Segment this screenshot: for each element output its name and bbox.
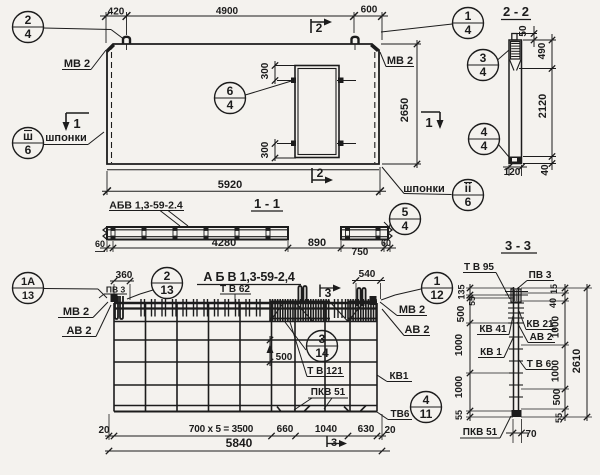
svg-text:890: 890 [308, 237, 326, 249]
svg-text:1000: 1000 [454, 375, 465, 398]
svg-text:3: 3 [319, 332, 326, 346]
svg-text:12: 12 [430, 288, 444, 302]
svg-text:3: 3 [325, 286, 332, 300]
svg-text:1 - 1: 1 - 1 [254, 196, 280, 211]
svg-text:КВ1: КВ1 [390, 371, 409, 382]
svg-text:Т В 6: Т В 6 [527, 359, 552, 370]
svg-text:3: 3 [331, 437, 337, 449]
svg-text:АВ 2: АВ 2 [530, 332, 553, 343]
svg-text:ПКВ 51: ПКВ 51 [311, 387, 346, 398]
svg-text:490: 490 [537, 42, 548, 59]
svg-text:КВ 41: КВ 41 [479, 324, 507, 335]
svg-text:15: 15 [549, 284, 559, 294]
svg-text:Т В 62: Т В 62 [220, 284, 250, 295]
svg-text:500: 500 [276, 352, 293, 363]
svg-text:ii: ii [465, 181, 472, 195]
svg-text:11: 11 [420, 407, 433, 421]
svg-text:40: 40 [540, 164, 551, 176]
svg-text:14: 14 [315, 346, 329, 360]
svg-text:3: 3 [480, 51, 487, 65]
svg-text:1040: 1040 [315, 424, 338, 435]
svg-text:4: 4 [423, 393, 430, 407]
svg-text:1000: 1000 [454, 333, 465, 356]
svg-text:300: 300 [260, 141, 271, 158]
svg-text:360: 360 [116, 270, 133, 281]
svg-text:13: 13 [160, 283, 174, 297]
svg-text:40: 40 [548, 298, 558, 308]
svg-text:5840: 5840 [226, 436, 253, 450]
svg-text:6: 6 [25, 143, 32, 157]
svg-text:ПКВ 51: ПКВ 51 [463, 427, 498, 438]
svg-text:1000: 1000 [551, 359, 562, 382]
svg-text:750: 750 [352, 247, 369, 258]
svg-text:шпонки: шпонки [45, 132, 86, 144]
svg-text:300: 300 [260, 62, 271, 79]
svg-text:3 - 3: 3 - 3 [505, 238, 531, 253]
svg-text:60: 60 [95, 239, 105, 249]
svg-text:540: 540 [359, 269, 376, 280]
svg-text:420: 420 [108, 7, 125, 18]
svg-text:2 - 2: 2 - 2 [503, 4, 529, 19]
svg-text:1А: 1А [21, 276, 35, 288]
svg-text:4: 4 [481, 125, 488, 139]
svg-text:4: 4 [227, 98, 234, 112]
svg-text:4: 4 [465, 23, 472, 37]
svg-text:АБВ 1,3-59-2.4: АБВ 1,3-59-2.4 [109, 200, 183, 212]
svg-text:ПВ 3: ПВ 3 [529, 270, 552, 281]
svg-text:20: 20 [384, 425, 396, 436]
svg-text:55: 55 [467, 296, 477, 306]
svg-text:1: 1 [73, 116, 80, 131]
svg-text:2: 2 [317, 166, 324, 180]
svg-text:70: 70 [525, 429, 537, 440]
svg-text:4: 4 [402, 219, 409, 233]
svg-text:Т В 95: Т В 95 [464, 262, 494, 273]
svg-text:1: 1 [434, 274, 441, 288]
svg-text:5920: 5920 [218, 179, 242, 191]
svg-text:4280: 4280 [212, 237, 236, 249]
svg-text:2: 2 [25, 13, 32, 27]
svg-text:АВ 2: АВ 2 [66, 325, 91, 337]
svg-text:630: 630 [358, 424, 375, 435]
svg-text:20: 20 [98, 425, 110, 436]
svg-text:55: 55 [454, 410, 464, 420]
svg-text:2: 2 [164, 269, 171, 283]
svg-text:6: 6 [465, 195, 472, 209]
svg-text:4: 4 [481, 139, 488, 153]
svg-text:600: 600 [361, 5, 378, 16]
svg-text:2: 2 [316, 21, 323, 35]
svg-text:ПВ 3: ПВ 3 [106, 285, 126, 295]
svg-text:2120: 2120 [537, 94, 549, 118]
svg-text:Т В 121: Т В 121 [307, 366, 343, 377]
svg-text:660: 660 [277, 424, 294, 435]
svg-text:2650: 2650 [399, 98, 411, 122]
svg-text:135: 135 [457, 284, 467, 299]
svg-text:13: 13 [22, 290, 34, 302]
svg-text:4900: 4900 [216, 6, 239, 17]
svg-text:700 х 5 = 3500: 700 х 5 = 3500 [189, 424, 254, 435]
svg-text:4: 4 [25, 27, 32, 41]
svg-text:КВ 21: КВ 21 [526, 319, 554, 330]
svg-text:6: 6 [227, 84, 234, 98]
svg-text:60: 60 [381, 238, 391, 248]
svg-text:МВ 2: МВ 2 [63, 306, 89, 318]
svg-text:500: 500 [456, 305, 467, 322]
svg-text:ш: ш [23, 129, 33, 143]
svg-text:120: 120 [504, 167, 521, 178]
svg-text:5: 5 [402, 205, 409, 219]
svg-text:1: 1 [465, 9, 472, 23]
svg-text:МВ 2: МВ 2 [64, 58, 90, 70]
svg-text:МВ 2: МВ 2 [387, 55, 413, 67]
svg-text:МВ 2: МВ 2 [399, 304, 425, 316]
svg-text:2610: 2610 [571, 349, 583, 373]
svg-text:55: 55 [554, 413, 564, 423]
svg-text:500: 500 [552, 388, 563, 405]
svg-text:ТВ6: ТВ6 [391, 409, 410, 420]
svg-text:4: 4 [480, 65, 487, 79]
svg-text:А Б В 1,3-59-2,4: А Б В 1,3-59-2,4 [203, 270, 294, 284]
svg-text:АВ 2: АВ 2 [404, 324, 429, 336]
svg-text:1: 1 [425, 115, 432, 130]
svg-text:КВ 1: КВ 1 [480, 347, 502, 358]
svg-text:50: 50 [518, 25, 529, 37]
